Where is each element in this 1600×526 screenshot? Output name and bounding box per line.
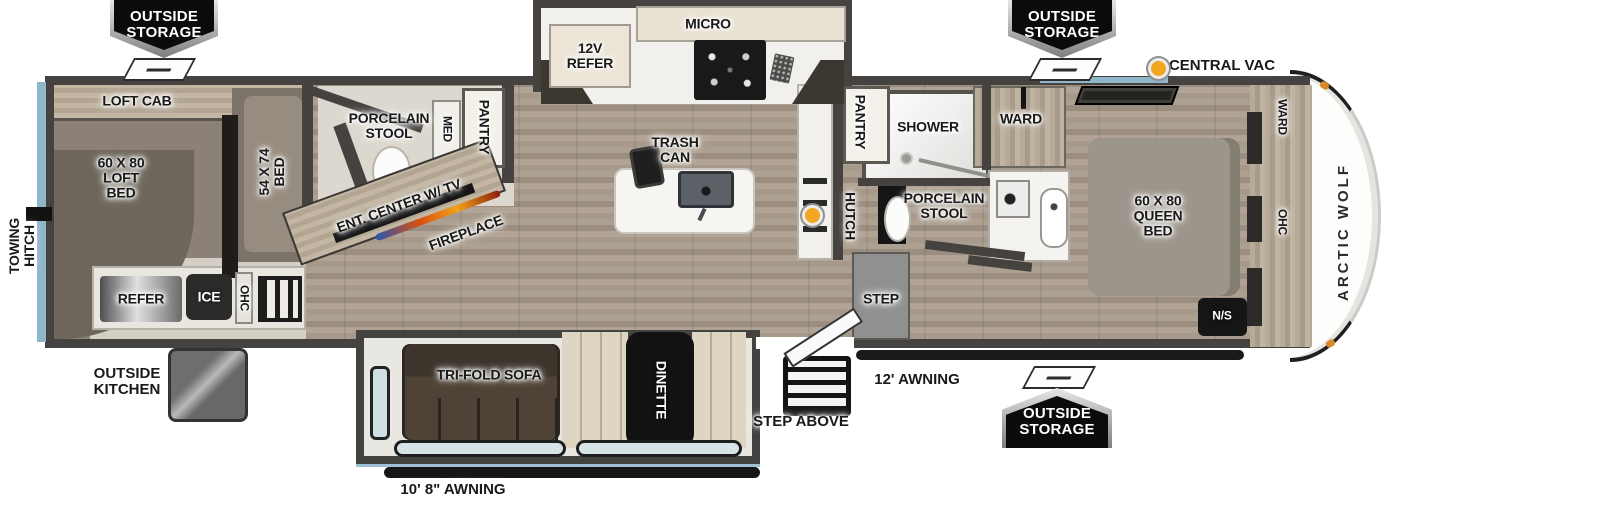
dinette-bench-left <box>562 332 628 448</box>
hutch-drawer-3 <box>803 226 827 232</box>
baggage-door-icon <box>1028 58 1102 81</box>
hutch-drawer-1 <box>803 178 827 184</box>
front-cabinet-door-3 <box>1247 268 1262 326</box>
toilet-icon-right <box>884 196 911 242</box>
queen-bed <box>1088 138 1240 296</box>
bath-mid-wall <box>858 178 990 186</box>
sofa-cushion-seams <box>402 398 560 440</box>
label-outside-kitchen: OUTSIDE KITCHEN <box>94 366 161 398</box>
label-central-vac: CENTRAL VAC <box>1169 58 1275 74</box>
dinette-table <box>626 332 694 448</box>
galley-wall <box>833 82 843 260</box>
ward-closet-rod <box>1021 87 1026 109</box>
slide-window-left <box>370 366 390 440</box>
outside-storage-badge-top-right: OUTSIDE STORAGE <box>1008 0 1116 58</box>
ice-maker <box>186 274 232 320</box>
vanity-sink-icon <box>1040 188 1068 248</box>
island-sink-icon <box>678 171 734 208</box>
slide-window-bottom-left <box>394 440 566 457</box>
label-10-8-awning: 10' 8" AWNING <box>400 482 505 498</box>
front-cabinet-door-2 <box>1247 196 1262 242</box>
baggage-door-icon <box>1022 366 1096 389</box>
vanity-fixture <box>996 180 1030 218</box>
refer-appliance <box>100 276 182 322</box>
bath-left-wall <box>302 85 313 213</box>
slide-window-bottom-right <box>576 440 742 457</box>
central-vac-location-dot <box>802 205 823 226</box>
outside-kitchen-door <box>168 348 248 422</box>
baggage-door-icon <box>122 58 196 81</box>
label-step-above: STEP ABOVE <box>753 414 849 430</box>
towing-hitch-pin <box>26 207 52 221</box>
dinette-bench-right <box>692 332 746 448</box>
awning-bar-right <box>856 350 1244 360</box>
label-towing-hitch: TOWING HITCH <box>7 218 37 274</box>
refer-12v-appliance <box>549 24 631 88</box>
ohc-cabinet-loft <box>235 272 253 324</box>
outside-storage-badge-bottom-right: OUTSIDE STORAGE <box>1002 388 1112 448</box>
bed-bath-wall <box>982 84 991 170</box>
shower-drain <box>900 152 913 165</box>
awning-bar-left <box>384 467 760 478</box>
central-vac-legend-dot <box>1148 58 1169 79</box>
roof-vent-icon <box>1075 86 1180 105</box>
micro-counter <box>636 6 846 42</box>
ladder-icon <box>258 276 302 322</box>
floorplan-stage: OUTSIDE STORAGE OUTSIDE STORAGE OUTSIDE … <box>0 0 1600 526</box>
stove-icon <box>694 40 766 100</box>
loft-beam-wall <box>222 115 238 278</box>
front-cabinet-door-1 <box>1247 112 1262 164</box>
step-platform <box>852 252 910 340</box>
hutch-counter <box>797 84 833 260</box>
pantry-cabinet-right <box>843 86 890 164</box>
label-12-awning: 12' AWNING <box>874 372 960 388</box>
outside-storage-badge-top-left: OUTSIDE STORAGE <box>110 0 218 58</box>
nightstand <box>1198 298 1247 336</box>
